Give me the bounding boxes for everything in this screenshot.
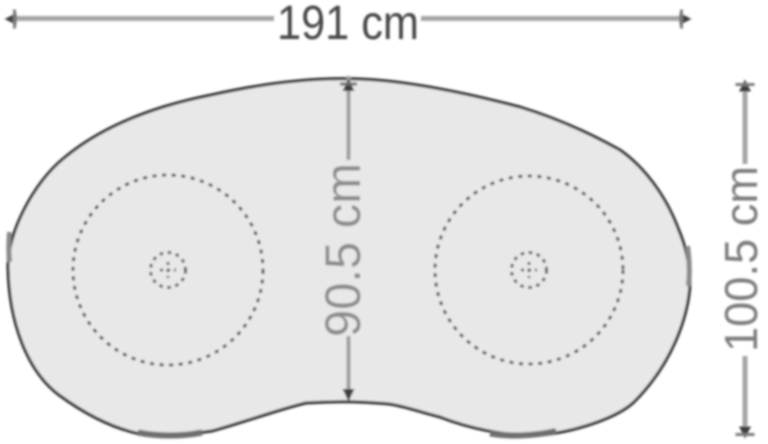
svg-text:100.5 cm: 100.5 cm: [715, 166, 767, 352]
svg-text:90.5 cm: 90.5 cm: [315, 163, 371, 337]
svg-text:191 cm: 191 cm: [277, 0, 419, 50]
